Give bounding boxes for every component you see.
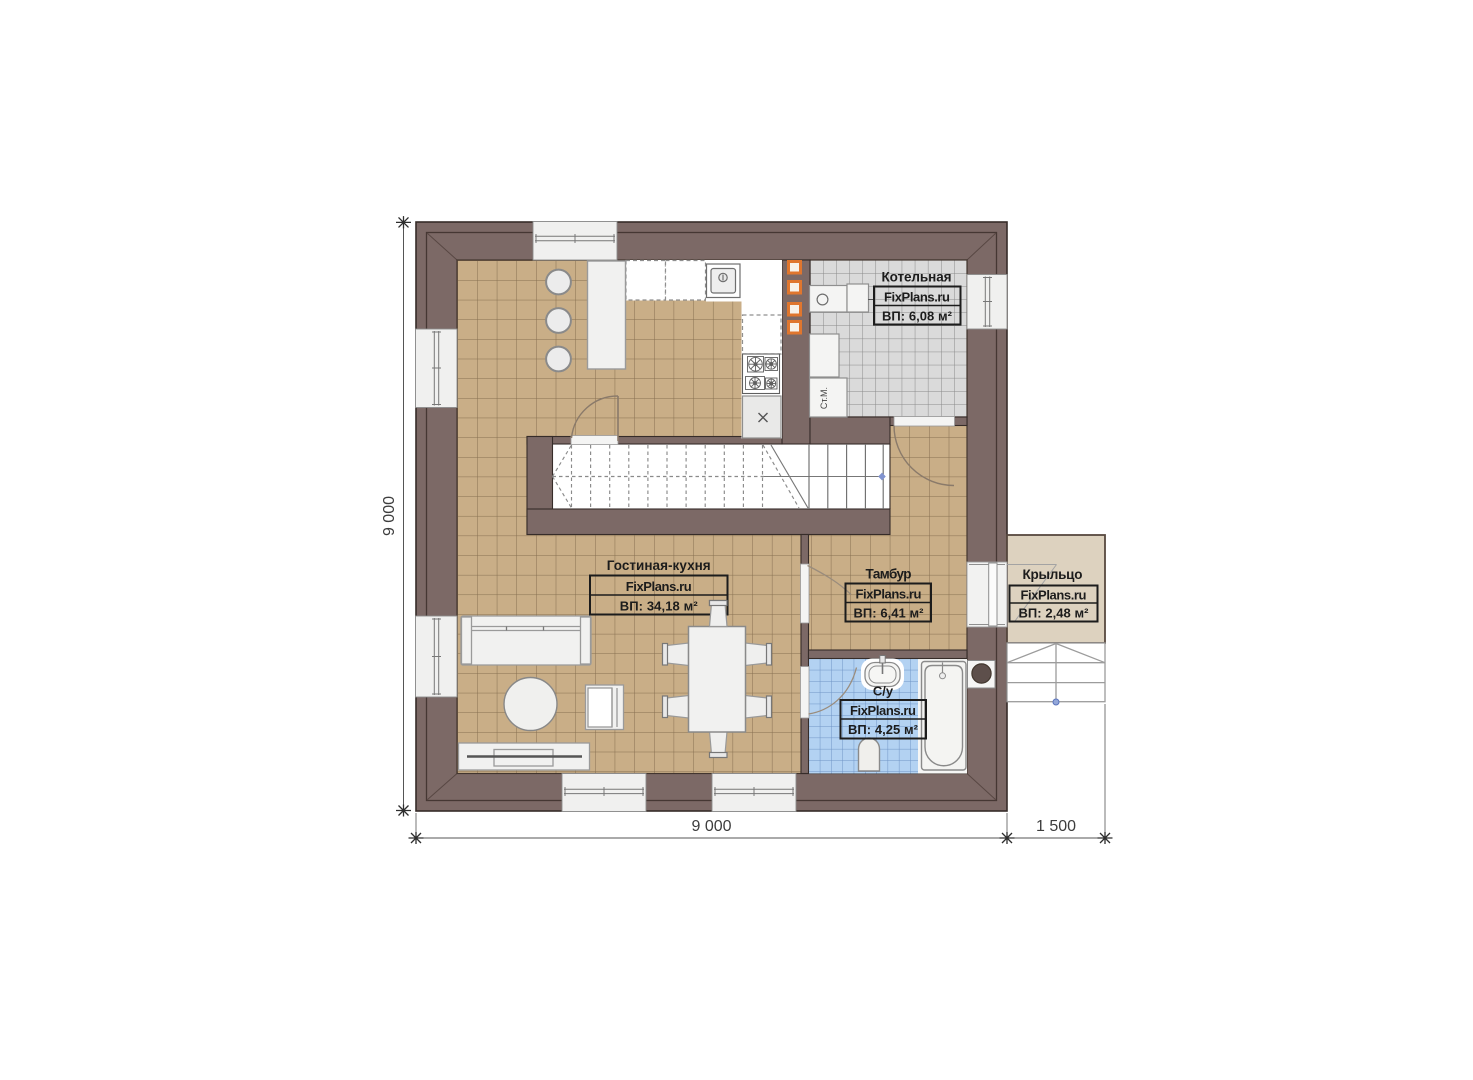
svg-text:FixPlans.ru: FixPlans.ru [850,703,916,718]
svg-text:ВП: 2,48 м²: ВП: 2,48 м² [1019,606,1090,621]
svg-text:1 500: 1 500 [1036,818,1076,835]
svg-text:9 000: 9 000 [691,818,731,835]
svg-text:FixPlans.ru: FixPlans.ru [1021,588,1087,603]
svg-text:ВП: 6,08 м²: ВП: 6,08 м² [882,309,953,324]
svg-text:ВП: 6,41 м²: ВП: 6,41 м² [854,606,925,621]
svg-text:Котельная: Котельная [882,270,952,285]
svg-text:FixPlans.ru: FixPlans.ru [856,587,922,602]
svg-text:Крыльцо: Крыльцо [1023,567,1083,582]
svg-text:ВП: 34,18 м²: ВП: 34,18 м² [620,599,699,614]
svg-text:FixPlans.ru: FixPlans.ru [626,579,692,594]
svg-text:Тамбур: Тамбур [866,567,912,582]
svg-text:FixPlans.ru: FixPlans.ru [884,290,950,305]
svg-text:Ст.М.: Ст.М. [819,387,829,409]
svg-text:9 000: 9 000 [381,496,398,536]
svg-text:С/у: С/у [873,684,894,699]
svg-text:ВП: 4,25 м²: ВП: 4,25 м² [848,722,919,737]
svg-text:Гостиная-кухня: Гостиная-кухня [607,558,711,573]
